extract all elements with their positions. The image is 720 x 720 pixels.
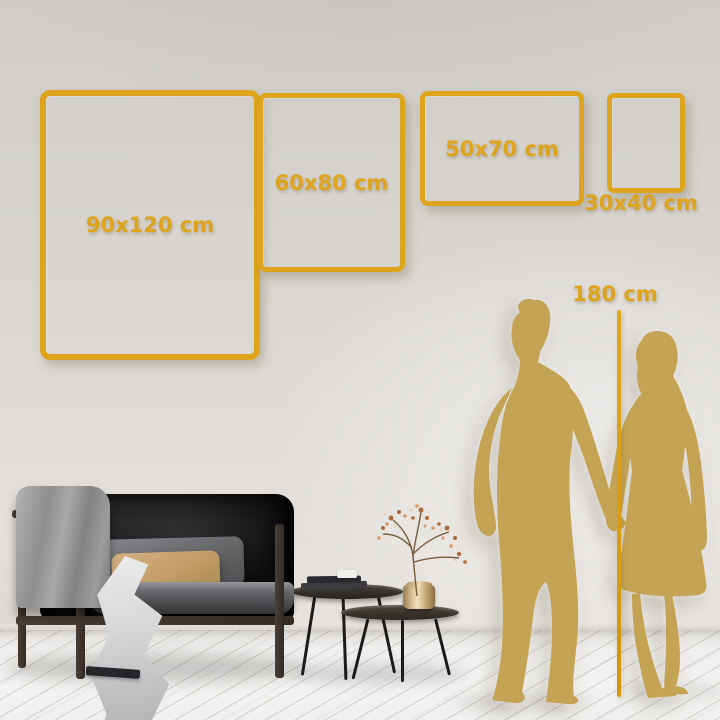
size-label-90x120: 90x120 cm — [86, 213, 214, 237]
size-label-30x40-wrap: 30x40 cm — [581, 191, 701, 215]
table-floor-shadow — [290, 664, 465, 684]
size-label-50x70: 50x70 cm — [445, 137, 559, 161]
size-guide-image: 90x120 cm 60x80 cm 50x70 cm 30x40 cm 180… — [0, 0, 720, 720]
size-label-30x40: 30x40 cm — [584, 191, 698, 215]
size-frame-30x40 — [607, 93, 685, 193]
book — [337, 570, 357, 578]
sofa-leg — [275, 524, 284, 678]
gray-blanket — [16, 486, 110, 608]
table-leg — [401, 620, 404, 682]
couple-silhouettes — [440, 290, 720, 720]
woman-silhouette — [606, 331, 707, 698]
size-frame-50x70: 50x70 cm — [420, 91, 584, 206]
height-reference-label-wrap: 180 cm — [560, 282, 670, 306]
height-reference-label: 180 cm — [572, 282, 657, 306]
height-measure-line — [617, 310, 621, 697]
size-frame-60x80: 60x80 cm — [258, 93, 405, 272]
size-label-60x80: 60x80 cm — [275, 171, 389, 195]
size-frame-90x120: 90x120 cm — [40, 90, 260, 360]
man-silhouette — [474, 299, 626, 704]
sofa — [12, 486, 302, 696]
